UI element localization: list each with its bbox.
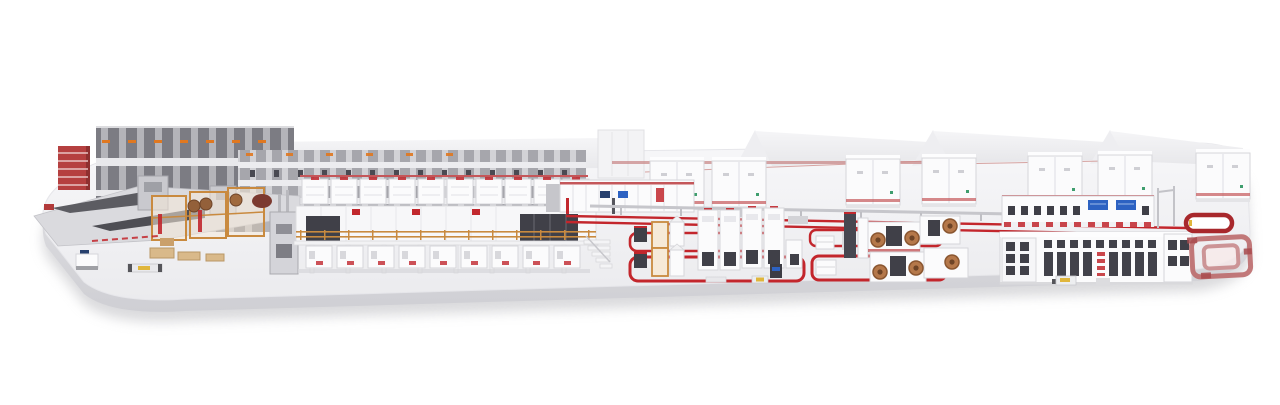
hall-screen-1: [1088, 200, 1108, 210]
agv-cell-1: [752, 276, 768, 283]
hall-screen-2: [1116, 200, 1136, 210]
production-line-figure: [0, 0, 1280, 405]
wall-screen-2: [618, 191, 628, 198]
wall-screen-1: [600, 191, 610, 198]
process-line-ground-deck: [306, 246, 580, 268]
factory-render: [0, 0, 1280, 405]
